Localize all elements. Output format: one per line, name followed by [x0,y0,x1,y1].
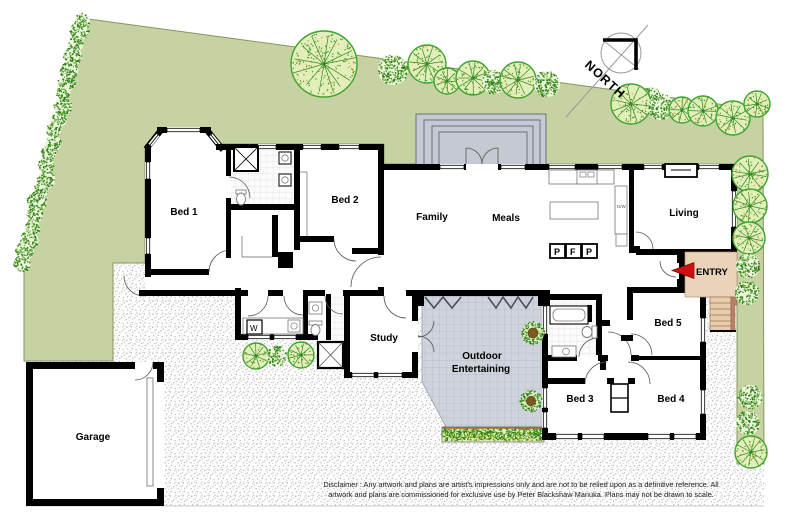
svg-text:Garage: Garage [76,432,111,443]
svg-text:D/W: D/W [617,204,627,209]
svg-text:Bed 2: Bed 2 [331,195,359,206]
svg-text:Study: Study [370,333,398,344]
svg-text:ENTRY: ENTRY [696,267,729,278]
svg-text:P: P [586,247,592,257]
svg-text:Family: Family [416,212,448,223]
svg-text:Living: Living [669,208,698,219]
svg-text:Meals: Meals [492,213,520,224]
svg-text:artwork and plans are commissi: artwork and plans are commissioned for e… [328,490,714,499]
svg-text:Bed 3: Bed 3 [566,394,594,405]
svg-text:Bed 4: Bed 4 [657,394,685,405]
svg-text:P: P [554,247,560,257]
svg-text:Bed 1: Bed 1 [170,207,198,218]
svg-text:Outdoor: Outdoor [462,351,502,362]
svg-text:W: W [250,324,258,333]
svg-text:Bed 5: Bed 5 [654,318,682,329]
svg-text:F: F [570,247,576,257]
svg-text:Disclaimer : Any artwork and p: Disclaimer : Any artwork and plans are a… [323,480,719,489]
svg-text:Entertaining: Entertaining [452,364,510,375]
